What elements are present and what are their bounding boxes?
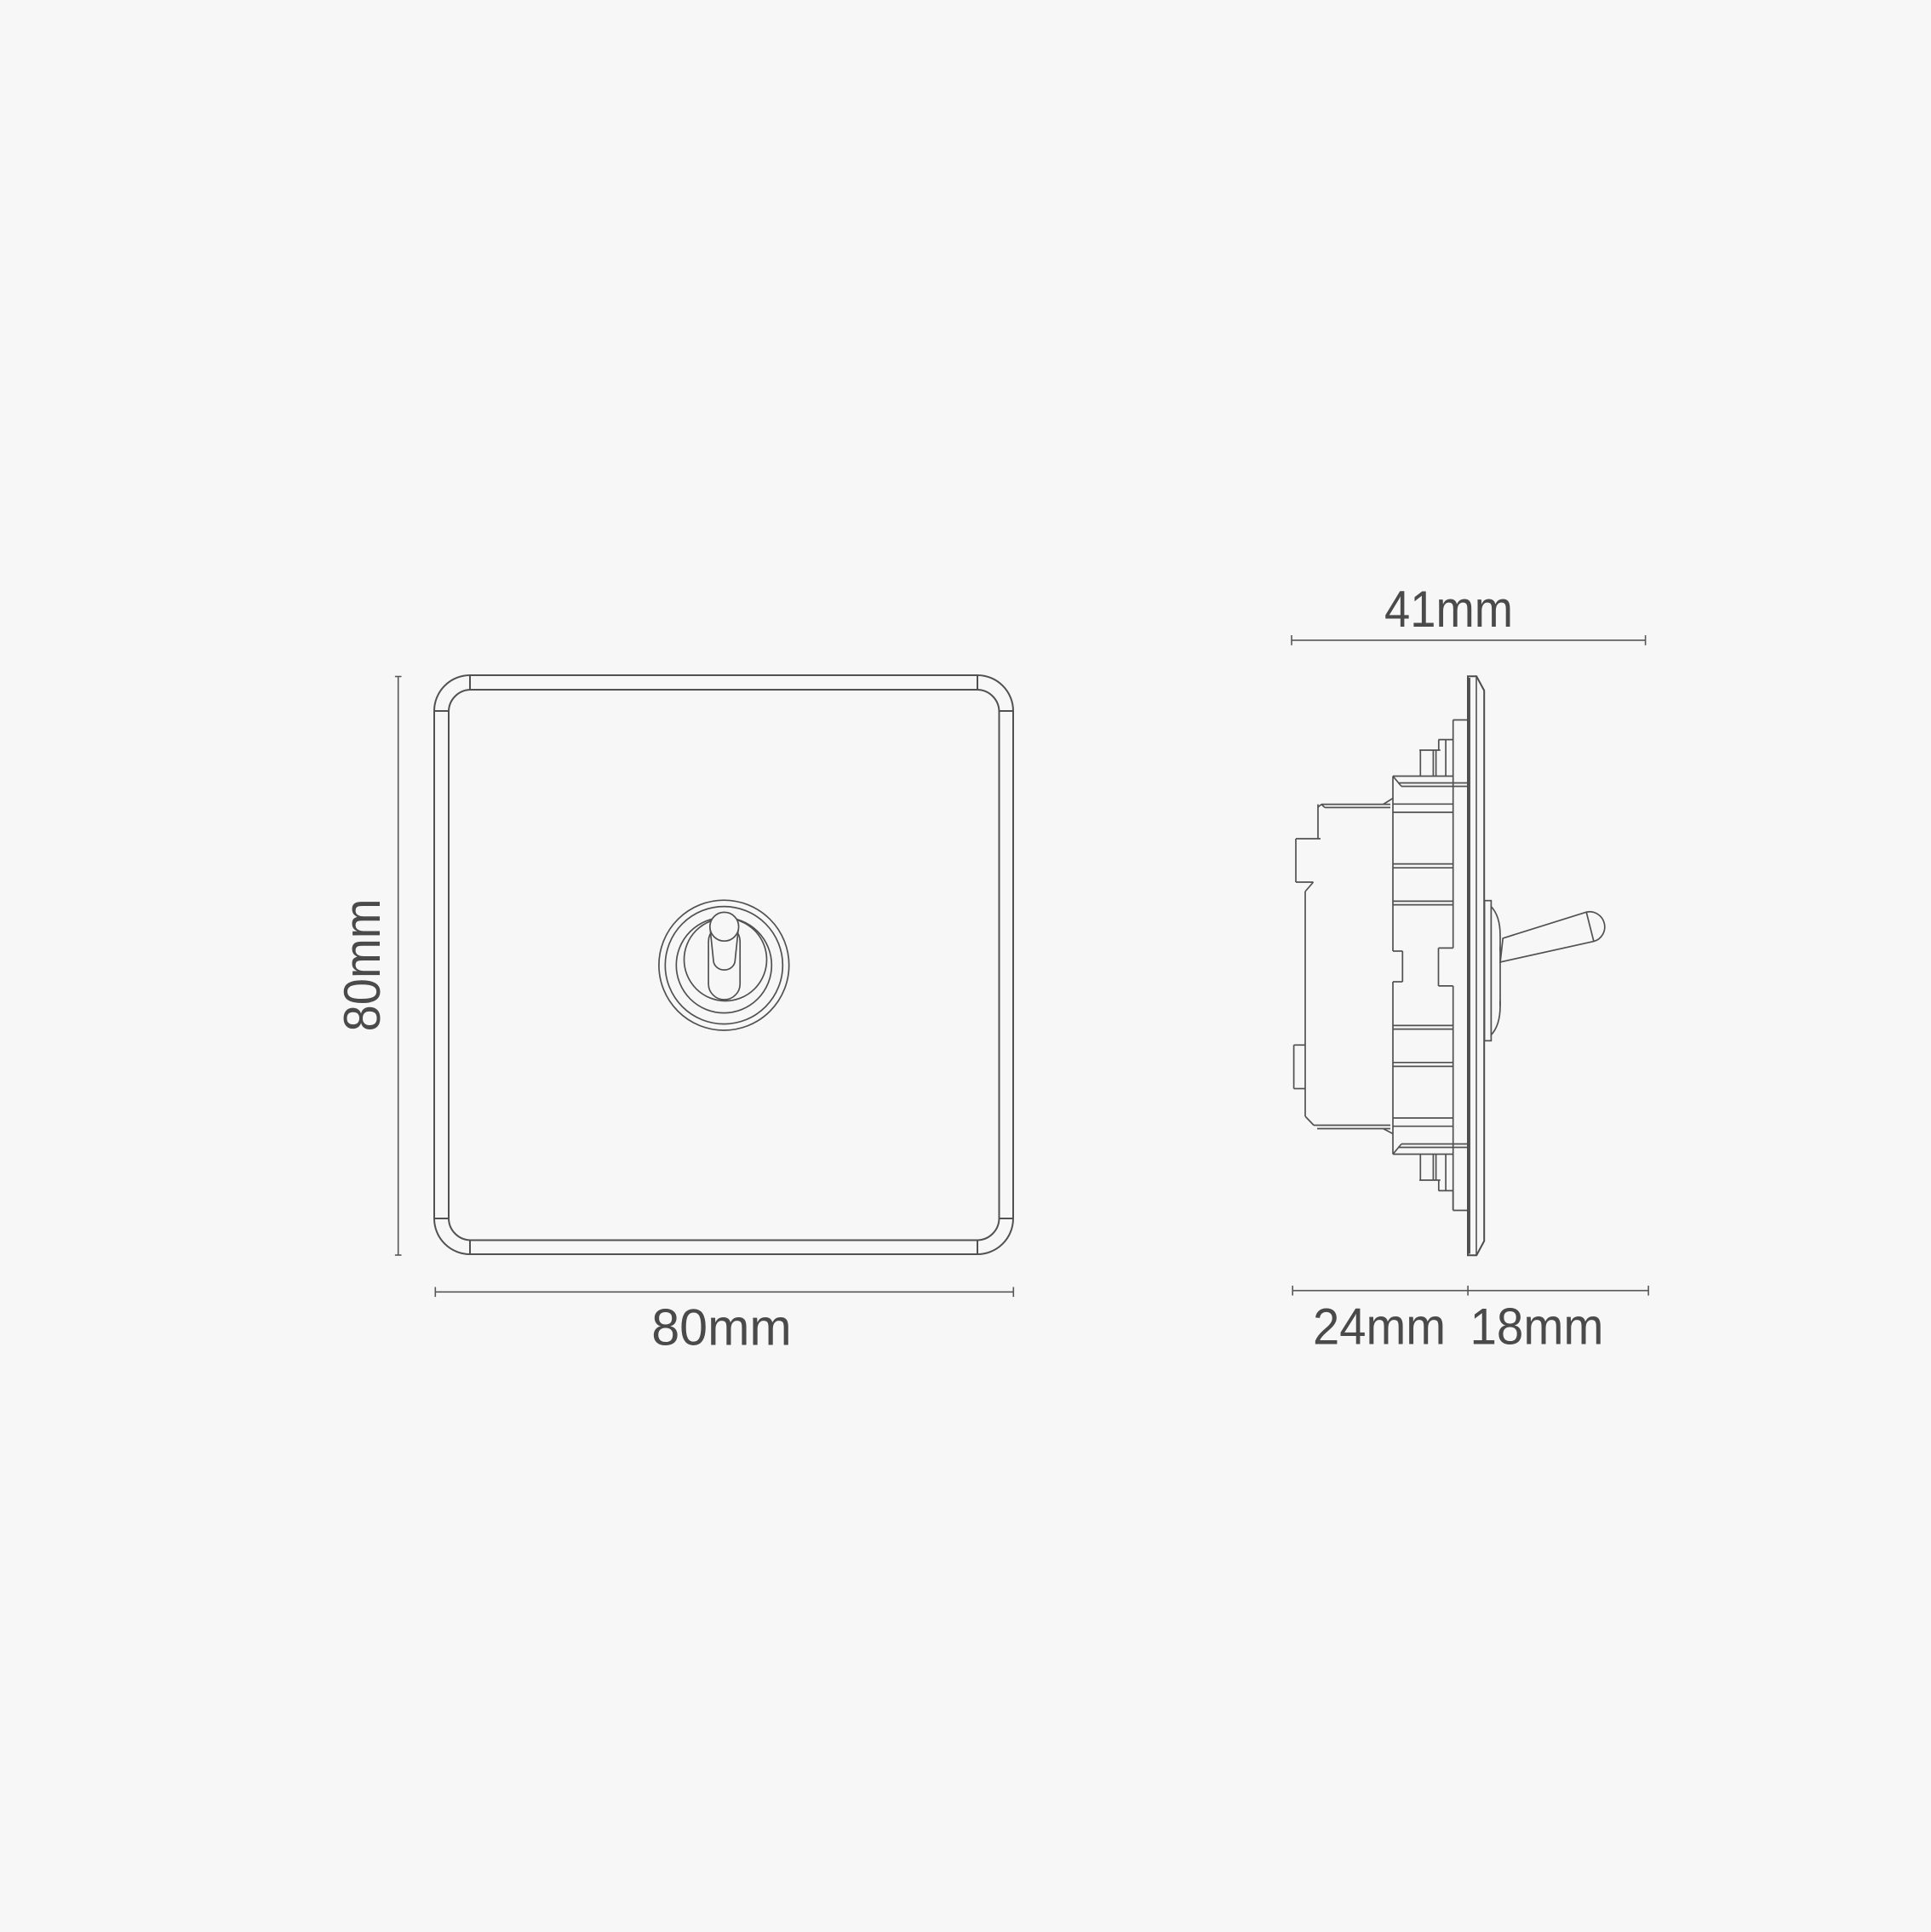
svg-text:80mm: 80mm	[334, 899, 391, 1032]
svg-text:80mm: 80mm	[651, 1299, 792, 1356]
svg-text:18mm: 18mm	[1470, 1298, 1604, 1355]
svg-text:24mm: 24mm	[1313, 1298, 1446, 1355]
svg-text:41mm: 41mm	[1384, 581, 1513, 638]
